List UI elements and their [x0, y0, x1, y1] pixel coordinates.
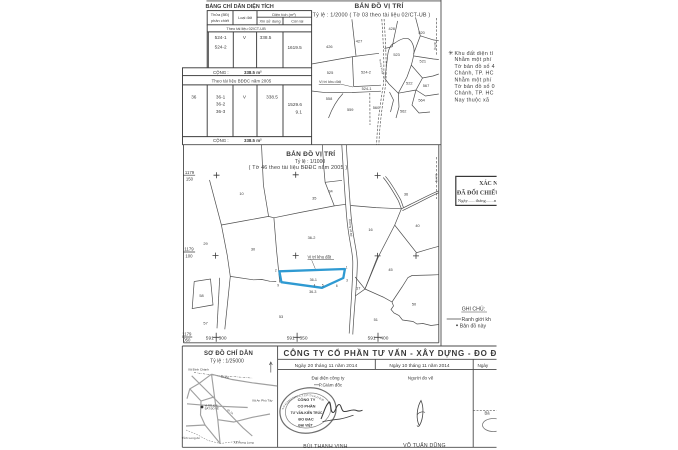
svg-text:V: V: [243, 94, 247, 99]
svg-text:5: 5: [322, 283, 324, 287]
svg-text:338.5: 338.5: [260, 35, 272, 40]
svg-text:40: 40: [415, 223, 420, 228]
svg-text:Loại đất: Loại đất: [238, 15, 253, 20]
svg-text:Thửa (BĐ): Thửa (BĐ): [211, 12, 230, 17]
svg-text:ĐẠI VIỆT: ĐẠI VIỆT: [298, 423, 313, 428]
svg-text:9.1: 9.1: [295, 110, 302, 115]
svg-text:Nay thuộc xã: Nay thuộc xã: [455, 97, 490, 103]
svg-text:Ranh giới kh: Ranh giới kh: [462, 317, 491, 323]
svg-text:Tờ bản đồ số 0: Tờ bản đồ số 0: [455, 84, 495, 90]
svg-text:Xã An Phú Tây: Xã An Phú Tây: [252, 398, 273, 402]
svg-text:Bả: Bả: [485, 411, 491, 416]
svg-text:9: 9: [277, 284, 279, 288]
svg-text:400: 400: [380, 336, 388, 342]
svg-text:30: 30: [251, 247, 256, 252]
svg-text:525: 525: [327, 70, 334, 75]
svg-text:45: 45: [388, 267, 392, 272]
svg-text:CỘNG :: CỘNG :: [213, 138, 229, 143]
svg-text:Còn lại: Còn lại: [291, 19, 303, 24]
svg-text:Chánh, TP. HC: Chánh, TP. HC: [455, 91, 494, 97]
svg-text:Nhằm một phí: Nhằm một phí: [455, 56, 492, 63]
svg-text:36: 36: [404, 192, 408, 197]
svg-text:GHI CHÚ:: GHI CHÚ:: [462, 306, 485, 313]
svg-text:36-3: 36-3: [309, 290, 316, 294]
svg-text:BẢNG CHỈ DẪN DIỆN TÍCH: BẢNG CHỈ DẪN DIỆN TÍCH: [206, 2, 274, 10]
svg-text:1179: 1179: [185, 170, 195, 175]
svg-text:53: 53: [279, 314, 283, 319]
svg-text:4: 4: [314, 284, 316, 288]
svg-text:1179: 1179: [182, 331, 192, 336]
svg-text:524-2: 524-2: [215, 45, 227, 50]
svg-text:Xin sử dụng: Xin sử dụng: [260, 19, 281, 24]
svg-text:Chánh, TP. HC: Chánh, TP. HC: [455, 71, 494, 77]
svg-text:6: 6: [336, 284, 338, 288]
svg-text:Nhằm một phí: Nhằm một phí: [455, 76, 492, 83]
svg-text:427: 427: [356, 39, 363, 44]
svg-text:35: 35: [312, 196, 316, 201]
svg-text:2: 2: [275, 269, 277, 273]
svg-text:100: 100: [185, 253, 193, 258]
svg-text:050: 050: [183, 338, 191, 343]
svg-text:520: 520: [418, 30, 425, 35]
svg-text:36-3: 36-3: [216, 109, 226, 114]
svg-text:BẢN ĐỒ VỊ TRÍ: BẢN ĐỒ VỊ TRÍ: [354, 0, 403, 10]
svg-text:338.5: 338.5: [266, 94, 278, 99]
svg-text:567: 567: [423, 83, 430, 88]
svg-text:1179: 1179: [184, 247, 194, 252]
svg-text:✳: ✳: [448, 50, 454, 57]
svg-text:Đại diện công ty: Đại diện công ty: [312, 376, 346, 381]
svg-text:XÁC NHẬN: XÁC NHẬN: [479, 179, 511, 187]
svg-text:Xã Hưng Long: Xã Hưng Long: [234, 440, 254, 444]
svg-text:Khu đất diện tí: Khu đất diện tí: [455, 51, 494, 57]
svg-text:Theo tài liệu BĐĐC năm 2005: Theo tài liệu BĐĐC năm 2005: [212, 79, 272, 84]
svg-text:591: 591: [206, 336, 214, 342]
svg-text:Xã Bình Chánh: Xã Bình Chánh: [188, 367, 209, 371]
svg-text:36-2: 36-2: [216, 102, 226, 107]
svg-text:phân chiết: phân chiết: [211, 18, 230, 23]
svg-text:TƯ VẤN-KIẾN TRÚC: TƯ VẤN-KIẾN TRÚC: [291, 410, 323, 415]
svg-text:Ngày 10 tháng 11 năm 2014: Ngày 10 tháng 11 năm 2014: [389, 363, 450, 369]
svg-text:CỔ PHẦN: CỔ PHẦN: [298, 403, 316, 408]
svg-text:36-2: 36-2: [308, 235, 316, 240]
svg-text:Tỷ lệ : 1/1000: Tỷ lệ : 1/1000: [295, 158, 326, 165]
svg-text:Ngày.......tháng.......n: Ngày.......tháng.......n: [458, 198, 497, 203]
svg-text:524-1: 524-1: [362, 86, 372, 91]
svg-text:29: 29: [203, 241, 207, 246]
svg-text:ĐÃ ĐỐI CHIẾU V: ĐÃ ĐỐI CHIẾU V: [457, 189, 506, 197]
svg-text:BÙI THANH VINH: BÙI THANH VINH: [303, 443, 348, 450]
svg-text:523: 523: [393, 52, 400, 57]
svg-text:426: 426: [326, 44, 333, 49]
svg-text:Người đo vẽ: Người đo vẽ: [408, 376, 434, 381]
svg-text:350: 350: [300, 336, 308, 342]
svg-text:591: 591: [287, 336, 295, 342]
svg-text:3: 3: [346, 279, 348, 283]
svg-text:562: 562: [400, 109, 407, 114]
svg-text:Bản đồ này: Bản đồ này: [460, 324, 487, 330]
svg-text:P.Giám đốc: P.Giám đốc: [319, 382, 343, 387]
svg-text:36-1: 36-1: [216, 94, 226, 99]
svg-text:338.5 m²: 338.5 m²: [244, 138, 262, 143]
svg-text:đường: đường: [433, 42, 437, 50]
svg-text:16: 16: [368, 227, 372, 232]
svg-text:VÕ TUẤN DŨNG: VÕ TUẤN DŨNG: [403, 442, 446, 449]
svg-text:522: 522: [406, 81, 413, 86]
svg-text:338.5 m²: 338.5 m²: [244, 70, 262, 75]
svg-text:Tỷ lệ : 1/25000: Tỷ lệ : 1/25000: [210, 358, 244, 365]
svg-text:Ngày 20 tháng 11 năm 2014: Ngày 20 tháng 11 năm 2014: [295, 363, 358, 369]
svg-text:đường: đường: [434, 174, 438, 183]
svg-text:36-1: 36-1: [310, 278, 317, 282]
svg-text:17: 17: [356, 286, 360, 291]
svg-text:34: 34: [328, 189, 333, 194]
svg-text:36: 36: [191, 94, 197, 99]
svg-text:V: V: [243, 35, 247, 40]
svg-text:521: 521: [420, 59, 427, 64]
svg-text:50: 50: [412, 301, 417, 306]
svg-text:1619.5: 1619.5: [287, 45, 302, 50]
svg-text:BẢN ĐỒ VỊ TRÍ: BẢN ĐỒ VỊ TRÍ: [286, 148, 335, 158]
svg-text:524-2: 524-2: [361, 70, 371, 75]
svg-text:ĐO ĐẠC: ĐO ĐẠC: [298, 416, 314, 421]
svg-text:( Tờ 46 theo tài liệu BĐĐC năm: ( Tờ 46 theo tài liệu BĐĐC năm 2005 ): [249, 165, 348, 171]
svg-text:Tỉnh Long An: Tỉnh Long An: [182, 436, 201, 440]
svg-text:57: 57: [203, 321, 207, 326]
svg-text:559: 559: [347, 107, 354, 112]
svg-text:Ngày: Ngày: [478, 363, 489, 368]
svg-text:560: 560: [373, 105, 380, 110]
svg-text:524-1: 524-1: [215, 35, 227, 40]
svg-text:564: 564: [418, 98, 425, 103]
svg-text:CÔNG TY CỔ PHẦN TƯ VẤN - XÂY D: CÔNG TY CỔ PHẦN TƯ VẤN - XÂY DỰNG - ĐO Đ…: [284, 348, 510, 358]
svg-text:Tỷ lệ : 1/2000 ( Tờ 03 theo tà: Tỷ lệ : 1/2000 ( Tờ 03 theo tài liệu 02/…: [313, 12, 431, 19]
svg-text:Vị trí khu đất: Vị trí khu đất: [319, 79, 342, 84]
svg-text:SƠ ĐỒ CHỈ DẪN: SƠ ĐỒ CHỈ DẪN: [204, 350, 253, 357]
svg-text:Vị trí khu đất: Vị trí khu đất: [308, 254, 332, 259]
svg-text:591: 591: [368, 336, 376, 342]
svg-text:1: 1: [346, 266, 348, 270]
svg-text:150: 150: [186, 177, 194, 182]
svg-text:10: 10: [239, 191, 244, 196]
svg-text:Theo tài liệu 02/CT-UB: Theo tài liệu 02/CT-UB: [226, 26, 266, 31]
svg-text:1529.6: 1529.6: [288, 102, 303, 107]
svg-text:Đường Vô Đê: Đường Vô Đê: [378, 59, 384, 75]
svg-text:300: 300: [219, 336, 227, 342]
svg-text:558: 558: [326, 96, 333, 101]
svg-text:51: 51: [374, 317, 378, 322]
svg-text:428: 428: [388, 26, 395, 31]
svg-text:ĐT.835: ĐT.835: [221, 376, 230, 380]
svg-text:CỘNG :: CỘNG :: [213, 70, 229, 75]
svg-text:Tờ bản đồ số 4: Tờ bản đồ số 4: [455, 64, 495, 70]
svg-text:58: 58: [199, 293, 203, 298]
svg-text:Diện tích (m²): Diện tích (m²): [272, 12, 296, 17]
